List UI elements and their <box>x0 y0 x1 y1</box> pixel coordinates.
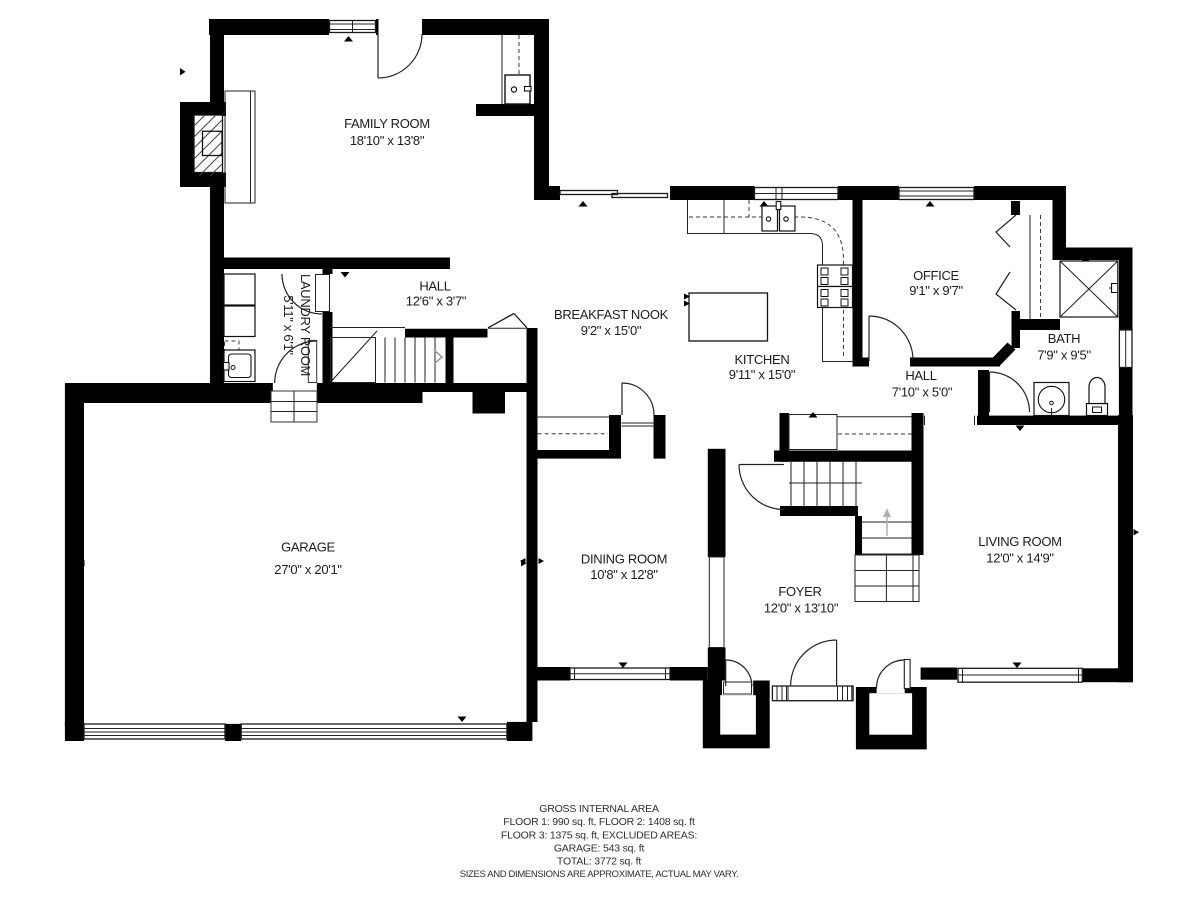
svg-text:GROSS INTERNAL AREA: GROSS INTERNAL AREA <box>539 803 659 815</box>
svg-text:GARAGE: 543 sq. ft: GARAGE: 543 sq. ft <box>554 843 645 855</box>
svg-text:TOTAL: 3772 sq. ft: TOTAL: 3772 sq. ft <box>557 856 641 868</box>
svg-text:27'0" x 20'1": 27'0" x 20'1" <box>274 562 342 577</box>
svg-text:9'11" x 15'0": 9'11" x 15'0" <box>729 367 796 382</box>
svg-text:FAMILY ROOM: FAMILY ROOM <box>344 116 430 131</box>
svg-text:FOYER: FOYER <box>778 584 821 599</box>
svg-text:18'10" x 13'8": 18'10" x 13'8" <box>350 133 425 148</box>
svg-text:HALL: HALL <box>419 279 450 294</box>
svg-text:FLOOR 3: 1375 sq. ft, EXCLUDED: FLOOR 3: 1375 sq. ft, EXCLUDED AREAS: <box>501 830 697 842</box>
svg-text:12'0" x 14'9": 12'0" x 14'9" <box>986 551 1054 566</box>
svg-text:BATH: BATH <box>1048 331 1081 346</box>
svg-text:OFFICE: OFFICE <box>913 268 959 283</box>
svg-text:GARAGE: GARAGE <box>281 540 335 555</box>
svg-text:KITCHEN: KITCHEN <box>735 352 790 367</box>
svg-text:FLOOR 1: 990 sq. ft, FLOOR 2:: FLOOR 1: 990 sq. ft, FLOOR 2: 1408 sq. f… <box>503 816 695 828</box>
svg-text:LIVING ROOM: LIVING ROOM <box>978 534 1061 549</box>
svg-text:DINING ROOM: DINING ROOM <box>581 552 667 567</box>
svg-text:10'8" x 12'8": 10'8" x 12'8" <box>590 567 658 582</box>
svg-text:SIZES AND DIMENSIONS ARE APPRO: SIZES AND DIMENSIONS ARE APPROXIMATE, AC… <box>460 869 739 880</box>
svg-text:HALL: HALL <box>905 368 936 383</box>
svg-text:9'1" x 9'7": 9'1" x 9'7" <box>909 283 963 298</box>
svg-text:9'2" x 15'0": 9'2" x 15'0" <box>581 323 642 338</box>
svg-text:BREAKFAST NOOK: BREAKFAST NOOK <box>554 307 669 322</box>
svg-text:5'11" x 6'1": 5'11" x 6'1" <box>281 295 296 355</box>
svg-text:7'10" x 5'0": 7'10" x 5'0" <box>892 385 953 400</box>
svg-text:7'9" x 9'5": 7'9" x 9'5" <box>1037 348 1091 363</box>
svg-text:LAUNDRY ROOM: LAUNDRY ROOM <box>298 274 313 376</box>
svg-text:12'6" x 3'7": 12'6" x 3'7" <box>406 294 467 309</box>
svg-text:12'0" x 13'10": 12'0" x 13'10" <box>764 601 839 616</box>
